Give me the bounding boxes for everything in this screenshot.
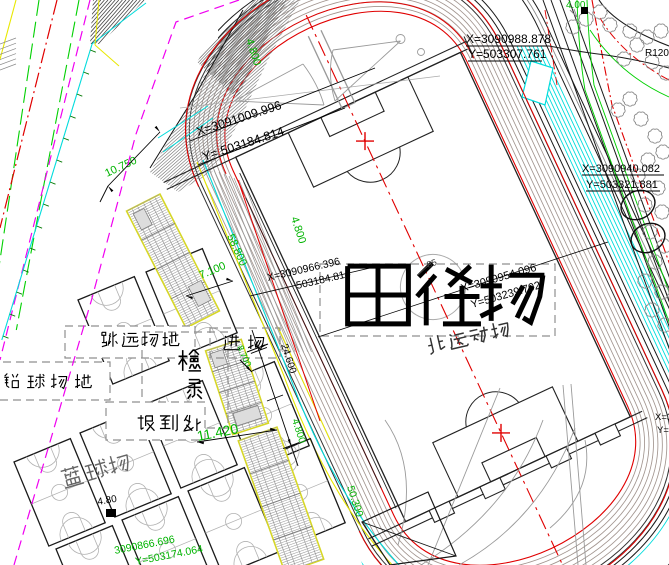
svg-text:X=3090988.878: X=3090988.878 bbox=[466, 32, 551, 46]
svg-text:Y=503321.881: Y=503321.881 bbox=[586, 179, 658, 191]
svg-text:X=3090940.082: X=3090940.082 bbox=[582, 163, 660, 175]
svg-text:Y=503307.761: Y=503307.761 bbox=[468, 47, 547, 61]
svg-text:R120.: R120. bbox=[645, 48, 669, 59]
svg-text:Y=5: Y=5 bbox=[657, 425, 669, 436]
svg-text:X=3: X=3 bbox=[655, 412, 669, 423]
